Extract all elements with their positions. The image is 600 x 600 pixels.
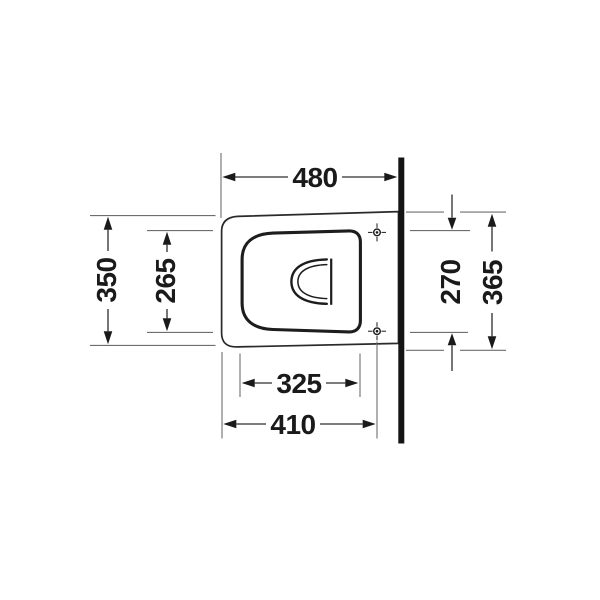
dimension-top-width: 480 xyxy=(221,153,397,218)
arrowhead-up xyxy=(488,214,497,227)
dim-label-265: 265 xyxy=(150,258,181,303)
dimension-right-fixing-span: 270 xyxy=(410,195,470,372)
dimension-left-inner-depth: 265 xyxy=(147,231,213,333)
arrowhead-right xyxy=(345,379,358,388)
arrowhead-left xyxy=(223,420,236,429)
bowl-inner-rim xyxy=(242,231,360,332)
arrowhead-up xyxy=(104,217,113,230)
arrowhead-down xyxy=(104,331,113,344)
arrowhead-down xyxy=(448,218,457,230)
dim-label-365: 365 xyxy=(477,260,508,305)
arrowhead-left xyxy=(242,379,255,388)
dim-label-480: 480 xyxy=(292,162,337,193)
arrowhead-left xyxy=(222,173,235,182)
arrowhead-up xyxy=(448,333,457,345)
arrowhead-up xyxy=(163,232,172,245)
arrowhead-down xyxy=(488,336,497,349)
dim-label-350: 350 xyxy=(91,257,122,302)
arrowhead-right xyxy=(363,420,376,429)
dim-label-410: 410 xyxy=(270,409,315,440)
dim-label-325: 325 xyxy=(276,368,321,399)
dimension-bottom-inner-width: 325 xyxy=(240,354,360,400)
dim-label-270: 270 xyxy=(435,259,466,304)
arrowhead-down xyxy=(163,318,172,331)
technical-drawing-page: 480 350 265 xyxy=(0,0,600,600)
dimension-drawing: 480 350 265 xyxy=(0,0,600,600)
wall-line xyxy=(398,158,404,444)
arrowhead-right xyxy=(384,173,397,182)
